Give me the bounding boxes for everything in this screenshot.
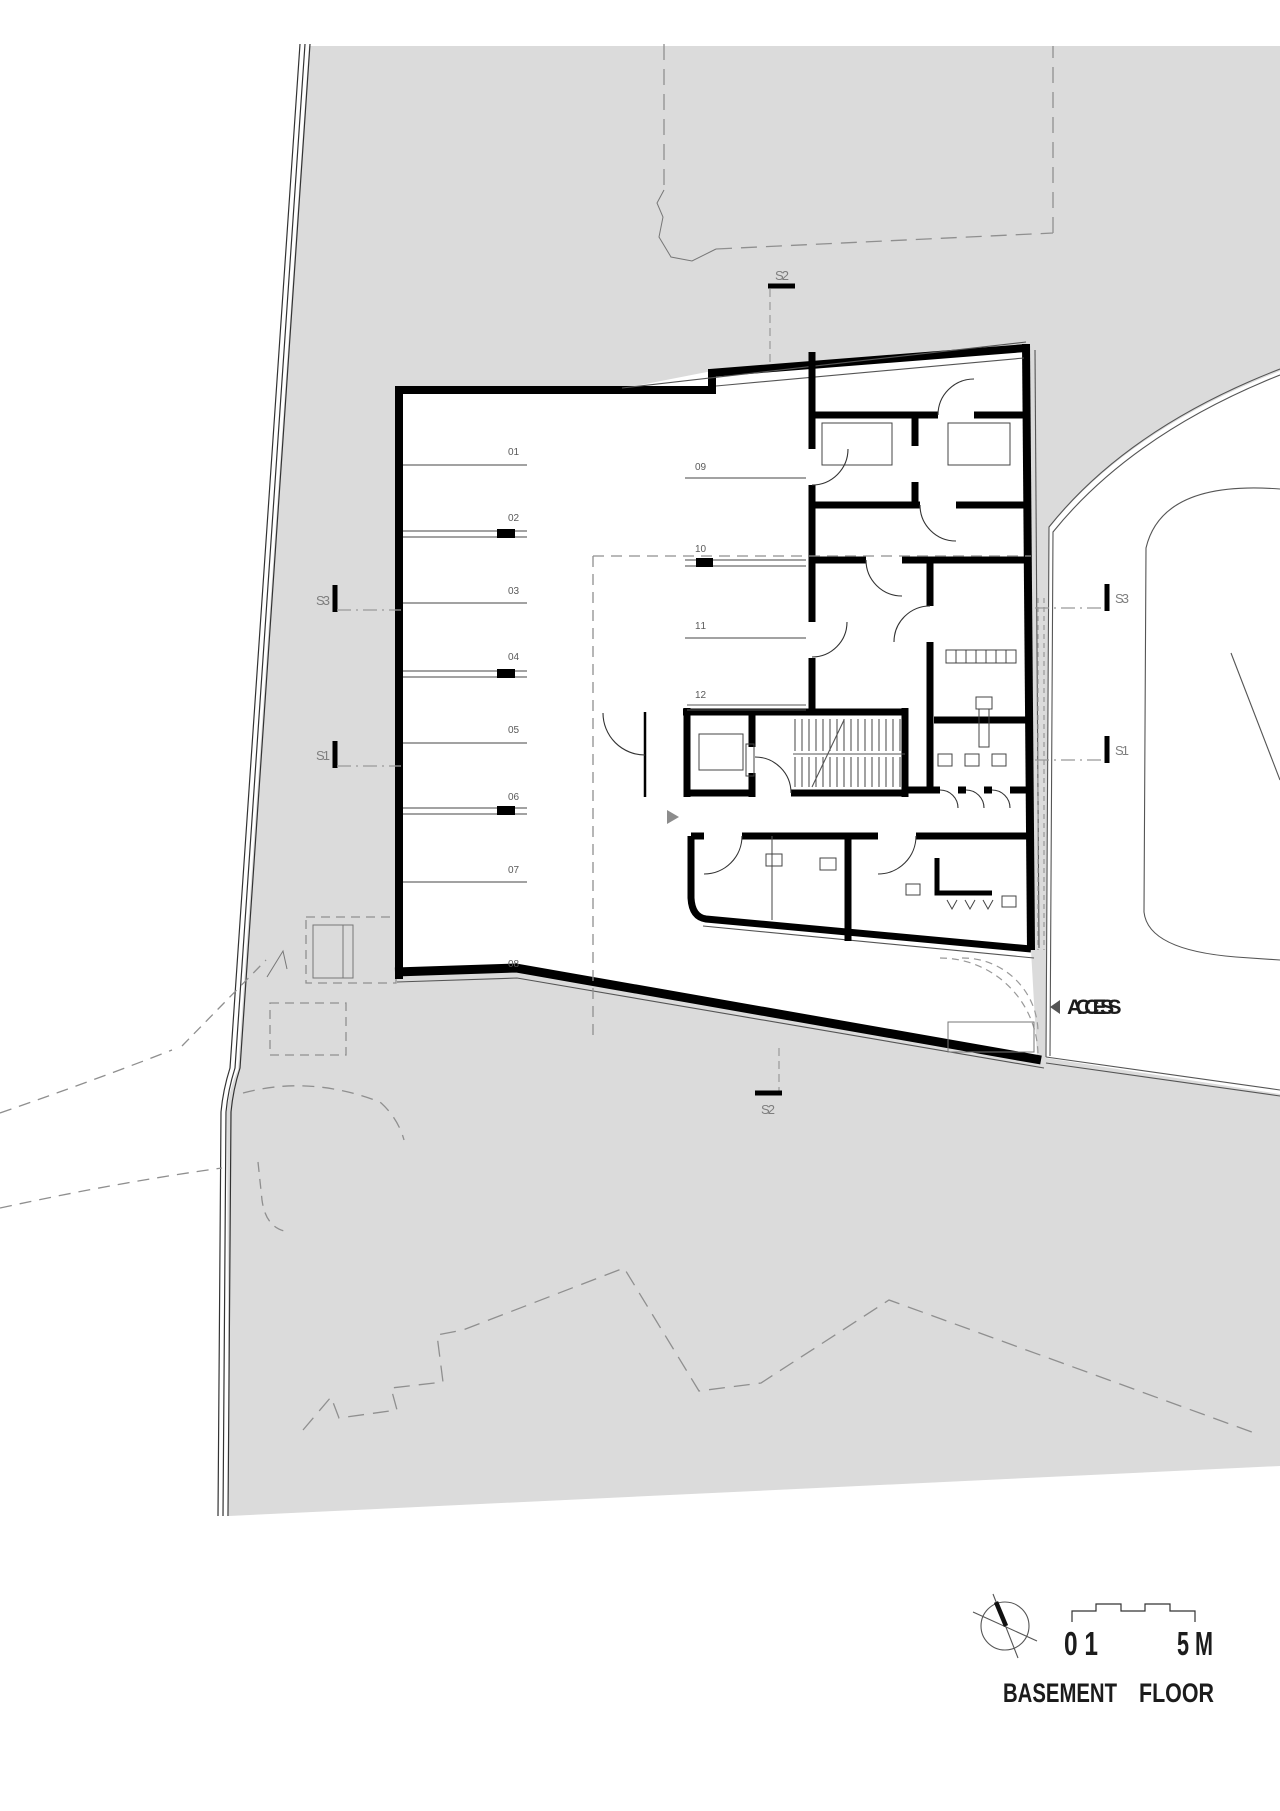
section-label-s2-top: S2 [775,268,789,283]
column-10 [696,558,713,567]
parking-number-06: 06 [508,792,519,803]
section-label-s3-right: S3 [1115,591,1129,606]
parking-number-03: 03 [508,586,519,597]
section-label-s1-right: S1 [1115,743,1129,758]
access-label: ACCESS [1067,996,1122,1019]
floor-plan-sheet: 01 02 03 04 05 06 07 08 09 10 11 12 S2 [0,0,1280,1811]
parking-number-08: 08 [508,959,519,970]
sheet-title-word2: FLOOR [1139,1678,1214,1708]
parking-number-11: 11 [695,621,706,632]
section-label-s1-left: S1 [316,748,330,763]
scale-label-right: 5 M [1177,1625,1213,1662]
scale-label-left: 0 1 [1064,1625,1098,1662]
parking-number-02: 02 [508,513,519,524]
column-02 [497,529,515,538]
parking-number-10: 10 [695,544,706,555]
parking-number-07: 07 [508,865,519,876]
section-label-s3-left: S3 [316,593,330,608]
floor-plan-drawing: 01 02 03 04 05 06 07 08 09 10 11 12 S2 [0,0,1280,1811]
parking-number-05: 05 [508,725,519,736]
sheet-title-word1: BASEMENT [1003,1678,1117,1708]
parking-number-09: 09 [695,462,706,473]
parking-number-04: 04 [508,652,519,663]
wall-east [1026,344,1031,950]
parking-number-12: 12 [695,690,706,701]
section-label-s2-bottom: S2 [761,1102,775,1117]
parking-number-01: 01 [508,447,519,458]
column-04 [497,669,515,678]
column-06 [497,806,515,815]
